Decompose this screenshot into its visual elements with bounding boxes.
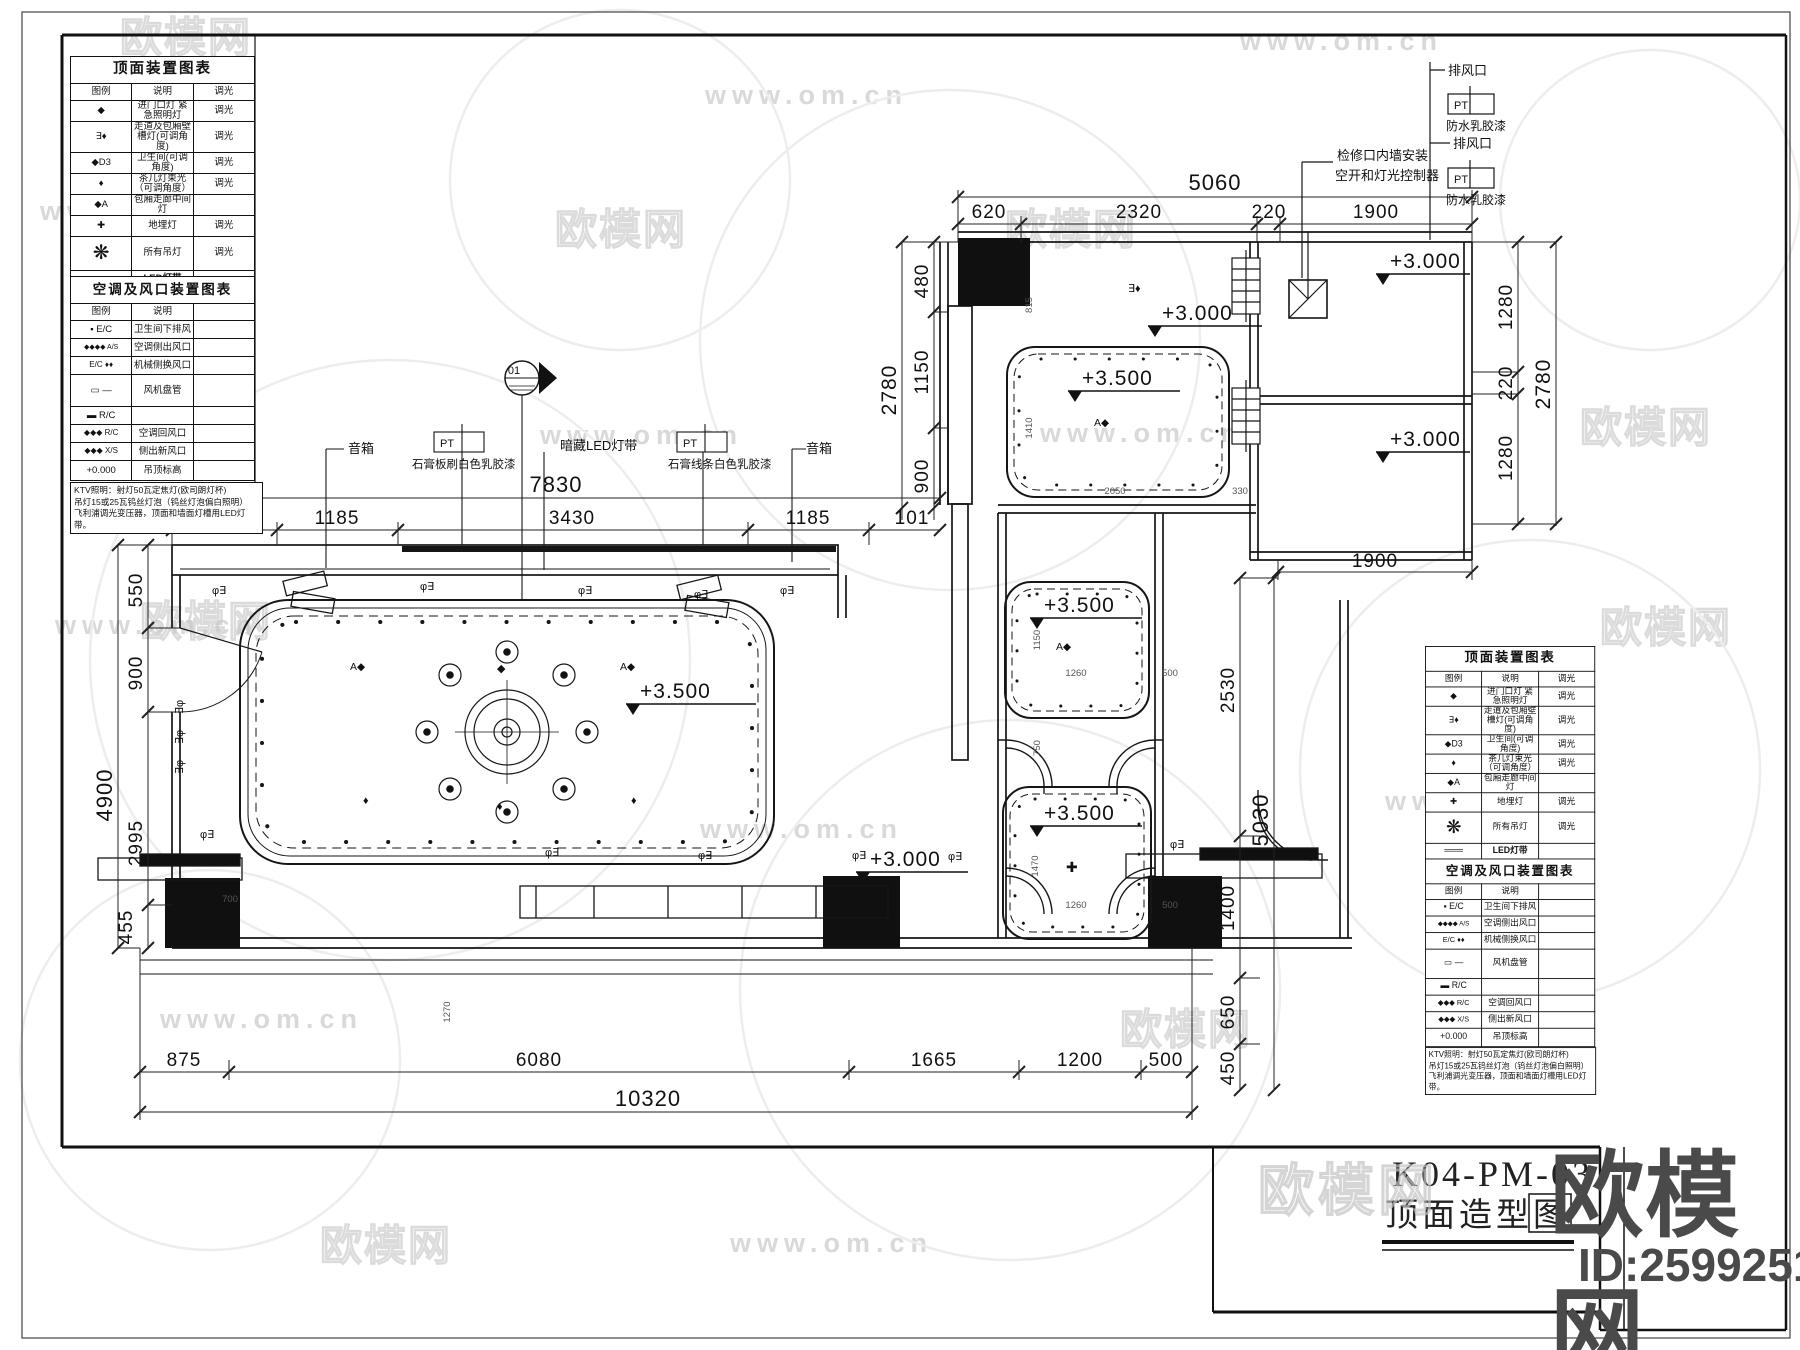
dim-label: 650 bbox=[1218, 995, 1239, 1030]
legend-dim: 调光 bbox=[193, 236, 254, 270]
dim-label: 2530 bbox=[1218, 667, 1239, 713]
legend-desc: 卫生间下排风 bbox=[1482, 899, 1538, 916]
dim-minor: 1470 bbox=[1030, 855, 1041, 876]
mech-vent-icon: E/C ♦♦ bbox=[71, 357, 132, 375]
legend-col-dim: 调光 bbox=[1538, 671, 1594, 687]
wall-lamp-icon: φ∃ bbox=[212, 585, 226, 597]
legend-desc: 包厢走廊中间灯 bbox=[1482, 773, 1538, 792]
dim-label: 1150 bbox=[912, 350, 933, 395]
legend-blank bbox=[193, 321, 254, 339]
legend-desc: 进门口灯 紧急照明灯 bbox=[132, 101, 193, 122]
note-line: KTV照明：射灯50瓦定焦灯(欧司朗灯杯) bbox=[74, 485, 259, 497]
legend-desc: 包厢走廊中间灯 bbox=[132, 194, 193, 215]
dim-minor: 1260 bbox=[1065, 668, 1086, 679]
entry-lamp-icon: ◆ bbox=[1425, 687, 1481, 706]
legend-col-symbol: 图例 bbox=[1425, 884, 1481, 900]
elevation-label: +3.500 bbox=[1082, 367, 1153, 390]
legend-desc: 机械侧换风口 bbox=[132, 357, 193, 375]
legend-desc bbox=[132, 407, 193, 425]
legend-dim: 调光 bbox=[193, 215, 254, 236]
small-spot-icon: ♦ bbox=[497, 801, 503, 813]
dim-corridor-total: 2780 bbox=[878, 365, 901, 416]
exhaust-label: 排风口 bbox=[1448, 63, 1487, 78]
dim-label: 2320 bbox=[1116, 202, 1162, 223]
elevation-label: +3.000 bbox=[870, 848, 941, 871]
legend-ceiling-right: 顶面装置图表 图例 说明 调光 ◆进门口灯 紧急照明灯调光 ∃♦走道及包厢壁槽灯… bbox=[1425, 646, 1595, 859]
dim-minor: 700 bbox=[222, 894, 238, 905]
wall-lamp-icon: φ∃ bbox=[948, 851, 962, 863]
elevation-label: +3.000 bbox=[1390, 428, 1461, 451]
wall-lamp-icon: ∃φ bbox=[174, 700, 186, 714]
dim-minor: 1410 bbox=[1024, 417, 1035, 438]
legend-desc: 吊顶标高 bbox=[1482, 1028, 1538, 1046]
speaker-label: 音箱 bbox=[348, 441, 374, 456]
dim-label: 900 bbox=[126, 656, 147, 691]
note-line: 吊灯15或25瓦钨丝灯泡（钨丝灯泡偏白照明） bbox=[1429, 1060, 1593, 1071]
legend-dim bbox=[193, 194, 254, 215]
legend-blank bbox=[193, 425, 254, 443]
ceiling-coves bbox=[240, 347, 1229, 939]
ac-return-icon: ◆◆◆ R/C bbox=[1425, 995, 1481, 1012]
elevation-label: +3.000 bbox=[1162, 302, 1233, 325]
ground-lamp-icon: ✚ bbox=[1066, 859, 1078, 875]
dim-label: 1200 bbox=[1057, 1050, 1103, 1071]
dim-label: 450 bbox=[1218, 1051, 1239, 1086]
legend-desc: 侧出新风口 bbox=[132, 443, 193, 461]
access-note-line1: 检修口内墙安装 bbox=[1337, 148, 1428, 163]
elevation-label: +3.500 bbox=[1044, 802, 1115, 825]
legend-title: 顶面装置图表 bbox=[1425, 646, 1594, 671]
pt-tag: PT bbox=[440, 438, 454, 450]
dim-upper-total: 7830 bbox=[530, 472, 583, 497]
dim-label: 220 bbox=[1252, 202, 1287, 223]
legend-blank bbox=[193, 443, 254, 461]
dim-label: 2995 bbox=[126, 820, 147, 866]
legend-desc: 空调回风口 bbox=[1482, 995, 1538, 1012]
legend-dim: 调光 bbox=[1538, 754, 1594, 773]
dim-label: 620 bbox=[972, 202, 1007, 223]
aim-lamp-icon: A◆ bbox=[1094, 417, 1110, 429]
dim-minor: 1270 bbox=[442, 1001, 453, 1022]
minor-dimension-labels: 815 1410 2050 330 1150 1260 500 750 1470… bbox=[222, 297, 1248, 1023]
legend-blank bbox=[1538, 932, 1594, 949]
dim-label: 1400 bbox=[1218, 885, 1239, 931]
elevation-label: +3.500 bbox=[640, 680, 711, 703]
legend-dim bbox=[1538, 773, 1594, 792]
elevation-marks: +3.500 +3.500 +3.500 +3.500 +3.000 +3.00… bbox=[626, 250, 1470, 883]
access-panel bbox=[1289, 232, 1327, 318]
dim-label: 1185 bbox=[315, 508, 360, 529]
legend-desc: 机械侧换风口 bbox=[1482, 932, 1538, 949]
legend-dim bbox=[1538, 843, 1594, 859]
dim-label: 1900 bbox=[1353, 202, 1399, 223]
legend-blank bbox=[1538, 916, 1594, 933]
legend-blank bbox=[1538, 1012, 1594, 1029]
wall-lamp-icon: ∃φ bbox=[174, 730, 186, 744]
fresh-air-icon: ◆◆◆ X/S bbox=[1425, 1012, 1481, 1029]
dim-label: 1280 bbox=[1496, 435, 1517, 481]
legend-col-symbol: 图例 bbox=[1425, 671, 1481, 687]
legend-desc bbox=[1482, 978, 1538, 995]
dim-label: 875 bbox=[167, 1050, 202, 1071]
tea-table-lamp-icon: ♦ bbox=[71, 173, 132, 194]
wall-lamp-icon: φ∃ bbox=[694, 589, 708, 601]
legend-col-symbol: 图例 bbox=[71, 304, 132, 321]
aim-lamp-icon: A◆ bbox=[1056, 641, 1072, 653]
waterproof-label: 防水乳胶漆 bbox=[1446, 118, 1506, 133]
legend-right-wrapper: 顶面装置图表 图例 说明 调光 ◆进门口灯 紧急照明灯调光 ∃♦走道及包厢壁槽灯… bbox=[1425, 646, 1596, 1095]
legend-dim: 调光 bbox=[1538, 812, 1594, 843]
legend-desc: 吊顶标高 bbox=[132, 461, 193, 481]
legend-desc: 茶几灯束光（可调角度） bbox=[1482, 754, 1538, 773]
legend-dim: 调光 bbox=[1538, 793, 1594, 812]
legend-col-desc: 说明 bbox=[132, 304, 193, 321]
dim-minor: 2050 bbox=[1104, 486, 1125, 497]
wall-lamp-icon: φ∃ bbox=[1170, 839, 1184, 851]
dim-label: 550 bbox=[126, 573, 147, 608]
gypsum-trim-label: 石膏线条白色乳胶漆 bbox=[668, 457, 772, 471]
pt-tag: PT bbox=[1454, 100, 1468, 112]
ktv-lighting-notes: KTV照明：射灯50瓦定焦灯(欧司朗灯杯) 吊灯15或25瓦钨丝灯泡（钨丝灯泡偏… bbox=[1425, 1047, 1596, 1095]
legend-desc: 走道及包厢壁槽灯(可调角度) bbox=[132, 122, 193, 153]
legend-dim: 调光 bbox=[193, 173, 254, 194]
legend-col-desc: 说明 bbox=[1482, 671, 1538, 687]
dim-label: 1280 bbox=[1496, 284, 1517, 330]
wall-slot-lamp-icon: ∃♦ bbox=[1425, 706, 1481, 734]
dim-bottom-total: 10320 bbox=[615, 1086, 681, 1111]
ktv-lighting-notes: KTV照明：射灯50瓦定焦灯(欧司朗灯杯) 吊灯15或25瓦钨丝灯泡（钨丝灯泡偏… bbox=[70, 482, 263, 534]
wall-lamp-icon: φ∃ bbox=[545, 847, 559, 859]
legend-desc: 风机盘管 bbox=[1482, 949, 1538, 978]
legend-desc: LED灯带 bbox=[1482, 843, 1538, 859]
legend-ceiling-left: 顶面装置图表 图例 说明 调光 ◆进门口灯 紧急照明灯调光 ∃♦走道及包厢壁槽灯… bbox=[70, 56, 255, 288]
spot-lamp-icon: ◆ bbox=[497, 663, 506, 675]
fresh-air-icon: ◆◆◆ X/S bbox=[71, 443, 132, 461]
legend-col-symbol: 图例 bbox=[71, 84, 132, 101]
chandelier-medallion bbox=[416, 641, 598, 823]
dim-label: 101 bbox=[895, 508, 930, 529]
ac-supply-icon: ◆◆◆◆ A/S bbox=[71, 339, 132, 357]
legend-blank bbox=[193, 357, 254, 375]
dim-left-total: 4900 bbox=[92, 769, 117, 822]
wall-slot-lamp-icon: ∃♦ bbox=[990, 247, 1003, 259]
dim-minor: 1150 bbox=[1032, 630, 1043, 650]
legend-title: 顶面装置图表 bbox=[71, 57, 255, 84]
legend-col-desc: 说明 bbox=[132, 84, 193, 101]
legend-desc: 进门口灯 紧急照明灯 bbox=[1482, 687, 1538, 706]
legend-hvac-left: 空调及风口装置图表 图例 说明 ▪ E/C卫生间下排风 ◆◆◆◆ A/S空调侧出… bbox=[70, 276, 255, 481]
legend-col-desc: 说明 bbox=[1482, 884, 1538, 900]
dim-label: 500 bbox=[1149, 1050, 1184, 1071]
tea-table-lamp-icon: ♦ bbox=[1425, 754, 1481, 773]
corridor-lamp-icon: ◆A bbox=[1425, 773, 1481, 792]
legend-blank bbox=[1538, 899, 1594, 916]
dim-label: 220 bbox=[1496, 366, 1517, 401]
ground-lamp-icon: ✚ bbox=[1425, 793, 1481, 812]
legend-desc: 侧出新风口 bbox=[1482, 1012, 1538, 1029]
dim-minor: 500 bbox=[1162, 668, 1178, 679]
elevation-datum-icon: +0.000 bbox=[71, 461, 132, 481]
legend-dim: 调光 bbox=[193, 122, 254, 153]
legend-desc: 所有吊灯 bbox=[132, 236, 193, 270]
entry-lamp-icon: ◆ bbox=[71, 101, 132, 122]
wall-slot-lamp-icon: ∃♦ bbox=[1128, 283, 1141, 295]
legend-blank bbox=[193, 407, 254, 425]
small-spot-icon: ♦ bbox=[363, 795, 369, 807]
legend-blank bbox=[193, 375, 254, 407]
legend-desc: 所有吊灯 bbox=[1482, 812, 1538, 843]
note-line: 飞利浦调光变压器，顶面和墙面灯槽用LED灯带。 bbox=[74, 508, 259, 531]
louver-vents bbox=[1232, 250, 1260, 452]
detail-marker-label: 01 bbox=[508, 365, 520, 377]
legend-dim: 调光 bbox=[193, 152, 254, 173]
legend-blank bbox=[193, 461, 254, 481]
dim-minor: 330 bbox=[1232, 486, 1248, 497]
dim-far-right-total: 2780 bbox=[1532, 359, 1555, 410]
note-line: 吊灯15或25瓦钨丝灯泡（钨丝灯泡偏白照明） bbox=[74, 497, 259, 509]
wall-lamp-icon: φ∃ bbox=[420, 581, 434, 593]
dimension-labels: 5060 620 2320 220 1900 7830 1015 1185 34… bbox=[92, 170, 1555, 1111]
legend-desc: 卫生间下排风 bbox=[132, 321, 193, 339]
dim-minor: 500 bbox=[1162, 900, 1178, 911]
exhaust-label: 排风口 bbox=[1453, 136, 1492, 151]
led-strip-label: 暗藏LED灯带 bbox=[560, 438, 637, 453]
legend-blank bbox=[1538, 1028, 1594, 1046]
speaker-symbols bbox=[283, 571, 729, 617]
brand-logo-text: 欧模网 bbox=[1550, 1120, 1800, 1350]
gypsum-board-label: 石膏板刷白色乳胶漆 bbox=[412, 457, 516, 471]
chandelier-icon: ❋ bbox=[1425, 812, 1481, 843]
ground-lamp-icon: ✚ bbox=[71, 215, 132, 236]
led-strip-icon: ═══ bbox=[1425, 843, 1481, 859]
elevation-label: +3.000 bbox=[1390, 250, 1461, 273]
legend-dim: 调光 bbox=[1538, 735, 1594, 754]
watermark-brand-ghost: 欧模网 bbox=[1258, 1146, 1438, 1227]
legend-desc: 卫生间(可调角度) bbox=[1482, 735, 1538, 754]
fan-coil-icon: ▭ — bbox=[1425, 949, 1481, 978]
brand-id: ID:2599251 bbox=[1578, 1238, 1800, 1292]
legend-blank bbox=[1538, 978, 1594, 995]
dim-label: 1665 bbox=[911, 1050, 957, 1071]
elevation-datum-icon: +0.000 bbox=[1425, 1028, 1481, 1046]
legend-blank bbox=[193, 339, 254, 357]
dim-label: 455 bbox=[116, 910, 137, 945]
legend-col-dim: 调光 bbox=[193, 84, 254, 101]
legend-desc: 风机盘管 bbox=[132, 375, 193, 407]
walls bbox=[140, 232, 1472, 974]
dim-label: 900 bbox=[912, 459, 933, 494]
pt-tag: PT bbox=[1454, 174, 1468, 186]
small-spot-icon: ♦ bbox=[631, 795, 637, 807]
legend-blank bbox=[1538, 995, 1594, 1012]
legend-desc: 空调侧出风口 bbox=[1482, 916, 1538, 933]
legend-desc: 走道及包厢壁槽灯(可调角度) bbox=[1482, 706, 1538, 734]
return-duct-icon: ▬ R/C bbox=[71, 407, 132, 425]
legend-desc: 地埋灯 bbox=[1482, 793, 1538, 812]
dim-top-total: 5060 bbox=[1189, 170, 1242, 195]
dimension-lines bbox=[112, 190, 1562, 1120]
legend-dim: 调光 bbox=[1538, 687, 1594, 706]
legend-blank bbox=[1538, 949, 1594, 978]
note-line: 飞利浦调光变压器，顶面和墙面灯槽用LED灯带。 bbox=[1429, 1071, 1593, 1092]
corridor-lamp-icon: ◆A bbox=[71, 194, 132, 215]
pt-tag: PT bbox=[683, 438, 697, 450]
toilet-lamp-icon: ◆D3 bbox=[71, 152, 132, 173]
toilet-lamp-icon: ◆D3 bbox=[1425, 735, 1481, 754]
legend-desc: 地埋灯 bbox=[132, 215, 193, 236]
legend-dim: 调光 bbox=[193, 101, 254, 122]
wall-slot-lamp-icon: ∃♦ bbox=[71, 122, 132, 153]
dim-label: 480 bbox=[912, 264, 933, 299]
chandelier-icon: ❋ bbox=[71, 236, 132, 270]
wall-lamp-icon: φ∃ bbox=[578, 585, 592, 597]
exhaust-fan-icon: ▪ E/C bbox=[1425, 899, 1481, 916]
waterproof-label: 防水乳胶漆 bbox=[1446, 192, 1506, 207]
dim-minor: 815 bbox=[1024, 297, 1035, 313]
wall-lamp-icon: φ∃ bbox=[780, 585, 794, 597]
wall-lamp-icon: ∃φ bbox=[174, 760, 186, 774]
return-duct-icon: ▬ R/C bbox=[1425, 978, 1481, 995]
aim-lamp-icon: A◆ bbox=[620, 661, 636, 673]
legend-col-blank bbox=[193, 304, 254, 321]
wall-lamp-icon: φ∃ bbox=[698, 850, 712, 862]
legend-desc: 茶几灯束光（可调角度） bbox=[132, 173, 193, 194]
dim-minor: 1260 bbox=[1065, 900, 1086, 911]
dim-label: 3430 bbox=[549, 508, 595, 529]
legend-col-blank bbox=[1538, 884, 1594, 900]
ac-supply-icon: ◆◆◆◆ A/S bbox=[1425, 916, 1481, 933]
dim-label: 6080 bbox=[516, 1050, 562, 1071]
note-line: KTV照明：射灯50瓦定焦灯(欧司朗灯杯) bbox=[1429, 1050, 1593, 1061]
dim-right-total: 5030 bbox=[1248, 794, 1273, 847]
legend-hvac-right: 空调及风口装置图表 图例 说明 ▪ E/C卫生间下排风 ◆◆◆◆ A/S空调侧出… bbox=[1425, 858, 1595, 1047]
access-note-line2: 空开和灯光控制器 bbox=[1335, 168, 1439, 183]
legend-desc: 空调回风口 bbox=[132, 425, 193, 443]
dim-minor: 750 bbox=[1032, 740, 1043, 756]
speaker-label: 音箱 bbox=[806, 441, 832, 456]
mech-vent-icon: E/C ♦♦ bbox=[1425, 932, 1481, 949]
wall-lamp-icon: φ∃ bbox=[200, 829, 214, 841]
ac-return-icon: ◆◆◆ R/C bbox=[71, 425, 132, 443]
legend-desc: 卫生间(可调角度) bbox=[132, 152, 193, 173]
legend-desc: 空调侧出风口 bbox=[132, 339, 193, 357]
legend-dim: 调光 bbox=[1538, 706, 1594, 734]
annotation-texts: 音箱 音箱 暗藏LED灯带 PT PT 石膏板刷白色乳胶漆 石膏线条白色乳胶漆 … bbox=[348, 365, 832, 471]
legend-title: 空调及风口装置图表 bbox=[1425, 859, 1594, 884]
legend-title: 空调及风口装置图表 bbox=[71, 277, 255, 304]
elevation-label: +3.500 bbox=[1044, 594, 1115, 617]
exhaust-fan-icon: ▪ E/C bbox=[71, 321, 132, 339]
aim-lamp-icon: A◆ bbox=[350, 661, 366, 673]
wall-lamp-icon: φ∃ bbox=[852, 850, 866, 862]
fan-coil-icon: ▭ — bbox=[71, 375, 132, 407]
dim-rooms-width: 1900 bbox=[1352, 551, 1398, 572]
drawing-sheet: www.om.cn www.om.cn www.om.cn www.om.cn … bbox=[0, 0, 1800, 1350]
